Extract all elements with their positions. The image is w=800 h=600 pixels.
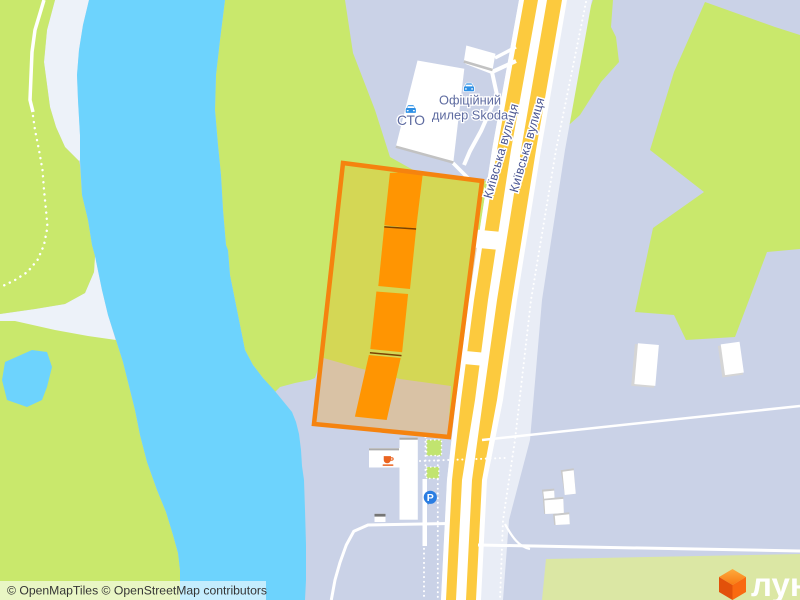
svg-text:Офіційний: Офіційний (439, 93, 501, 108)
svg-text:P: P (427, 492, 434, 504)
svg-text:СТО: СТО (397, 113, 425, 128)
svg-text:© OpenMapTiles © OpenStreetMap: © OpenMapTiles © OpenStreetMap contribut… (7, 584, 267, 598)
svg-text:лун: лун (751, 566, 800, 600)
svg-text:дилер Skoda: дилер Skoda (432, 108, 509, 123)
